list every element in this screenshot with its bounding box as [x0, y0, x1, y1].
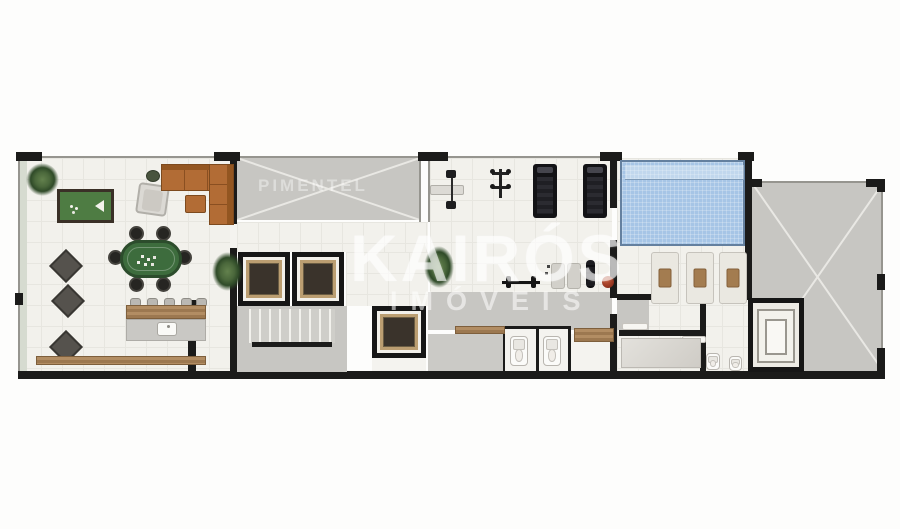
elevator-cab [303, 263, 333, 295]
wall-thin [240, 156, 418, 158]
toilet [706, 353, 720, 370]
exercise-mat [551, 263, 565, 289]
bench-press-bench [430, 185, 464, 195]
elevator-gap [377, 311, 421, 353]
bar-counter-wood [126, 305, 206, 319]
wall-segment [610, 158, 617, 208]
elevator-2 [292, 252, 344, 306]
toilet [543, 336, 561, 366]
poker-chair [129, 226, 144, 241]
billiard-balls [70, 205, 73, 208]
sun-lounger [719, 252, 747, 304]
toilet [510, 336, 528, 366]
cross-pattern-icon [237, 158, 420, 220]
shelf [622, 323, 648, 330]
poker-chair [129, 277, 144, 292]
gray-corridor [428, 292, 612, 330]
poker-chair [156, 226, 171, 241]
medicine-ball [602, 276, 614, 288]
exercise-mat [567, 263, 581, 289]
wall-stall [536, 326, 539, 372]
hall-floor [346, 252, 428, 306]
stair-treads [249, 309, 335, 343]
wall-segment [877, 348, 885, 372]
storage-floor [428, 334, 504, 372]
wall-segment [610, 240, 617, 298]
weight-rack-arm [492, 186, 509, 189]
wall-segment [418, 152, 448, 161]
wall-thin [419, 158, 421, 222]
wall-thin [18, 158, 20, 371]
toilet [729, 356, 742, 371]
sun-lounger [651, 252, 679, 304]
foam-roller [586, 260, 595, 288]
wood-bench [574, 328, 614, 342]
elevator-trim [246, 260, 282, 298]
sun-lounger [686, 252, 714, 304]
elevator-gap [243, 257, 285, 301]
pool-ledge [625, 165, 744, 180]
wall-thin [20, 156, 216, 158]
swimming-pool [620, 160, 745, 246]
wall-stall [568, 326, 571, 372]
sink [157, 322, 177, 336]
pouf [146, 170, 160, 182]
poker-chair [156, 277, 171, 292]
planter-strip [20, 158, 27, 372]
plant [424, 246, 454, 288]
plant [212, 252, 243, 291]
stair-rail [252, 342, 332, 347]
elevator-gap [297, 257, 339, 301]
elevator-trim [300, 260, 336, 298]
wall-segment [877, 179, 885, 192]
wall-thin [754, 181, 866, 183]
wall-segment [15, 293, 23, 305]
playing-cards [141, 255, 144, 258]
wall-thin [448, 156, 600, 158]
billiard-table [57, 189, 114, 223]
wall-pool-right [745, 158, 752, 248]
wall-thin [881, 290, 883, 348]
wall-thin [881, 192, 883, 274]
elevator-trim [380, 314, 418, 350]
wall-segment [877, 274, 885, 290]
elevator-cab [383, 317, 415, 347]
wall-segment [610, 314, 617, 372]
dumbbells [490, 169, 495, 174]
wall-bottom [18, 371, 885, 379]
weight-plate [446, 170, 456, 178]
sofa-l-shaped-arm [209, 164, 234, 225]
treadmill [583, 164, 607, 218]
elevator-1 [238, 252, 290, 306]
wall-segment [16, 152, 42, 161]
plant [26, 163, 59, 196]
barbell-plate [531, 276, 536, 288]
chalk-marks [547, 265, 550, 268]
treadmill [533, 164, 557, 218]
corridor-floor [237, 222, 428, 252]
poker-table [120, 240, 182, 278]
wall-segment [617, 294, 651, 300]
spiral-stair-core [765, 319, 787, 355]
ottoman [185, 195, 206, 213]
weight-plate [446, 201, 456, 209]
vanity-counter [621, 338, 701, 368]
long-bench [36, 356, 206, 365]
elevator-cab [249, 263, 279, 295]
floorplan-canvas: PIMENTEL KAIRÓS IMÓVEIS [0, 0, 900, 529]
barbell-plate [506, 276, 511, 288]
elevator-3 [372, 306, 426, 358]
small-room-floor [372, 358, 426, 371]
void-area-top [237, 158, 420, 220]
door-opening [230, 224, 237, 248]
wood-bench [455, 326, 505, 334]
